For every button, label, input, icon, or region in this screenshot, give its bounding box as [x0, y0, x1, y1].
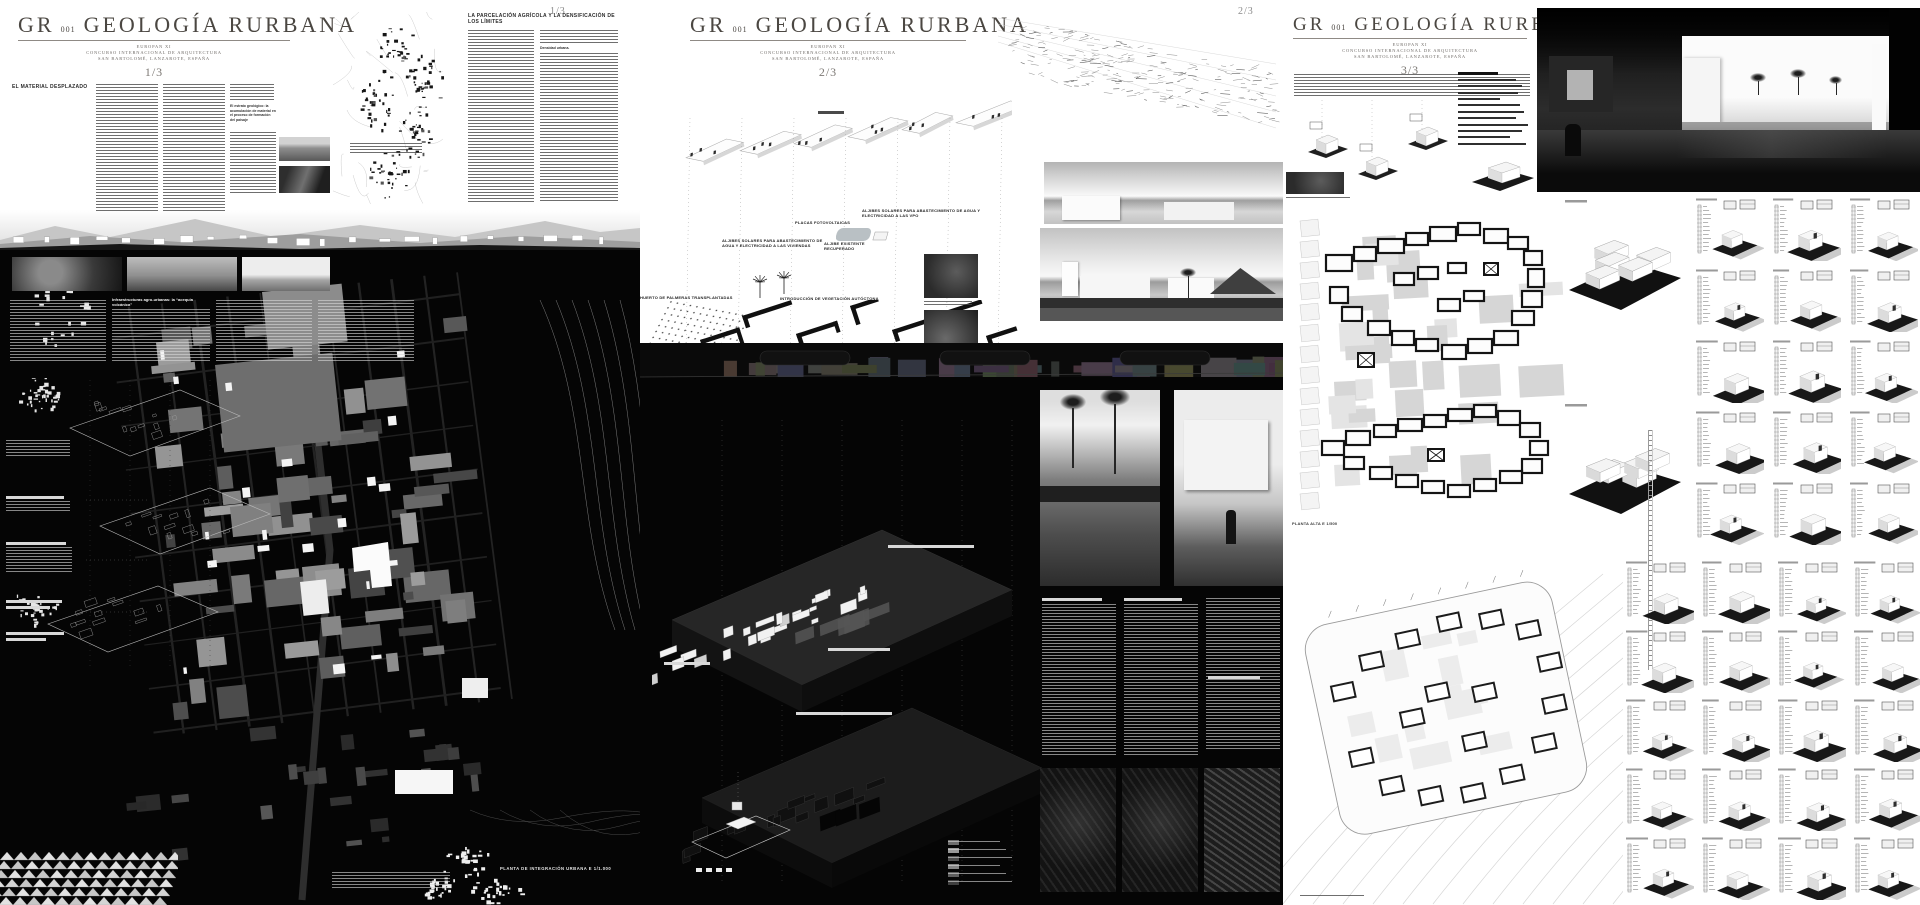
photo-people — [127, 257, 237, 291]
housing-type-card — [1852, 767, 1920, 831]
plan-scale-label: PLANTA DE INTEGRACIÓN URBANA E 1/1.000 — [500, 866, 640, 871]
photo-palm-street — [1040, 390, 1160, 586]
title-rule — [690, 40, 966, 41]
annotation-heading-greek — [6, 632, 64, 635]
competition-location: SAN BARTOLOMÉ, LANZAROTE, ESPAÑA — [1293, 54, 1527, 60]
floor-plan-ground — [1283, 542, 1623, 905]
materials-legend — [948, 838, 1052, 892]
housing-type-card — [1700, 698, 1770, 762]
competition-subtitle: EUROPAN XI CONCURSO INTERNACIONAL DE ARQ… — [1293, 42, 1527, 60]
photo-white-wall — [1174, 390, 1283, 586]
volcano-silhouette — [1210, 268, 1276, 294]
annotation-heading-greek — [6, 496, 64, 499]
housing-type-card — [1694, 481, 1764, 545]
housing-type-card — [1776, 629, 1846, 693]
greek-text — [230, 84, 274, 102]
program-legend-item — [1458, 92, 1518, 94]
housing-type-card — [1776, 836, 1846, 900]
low-wall — [1040, 486, 1160, 502]
aerial-perspective-sketch — [988, 4, 1280, 132]
housing-type-card — [1700, 767, 1770, 831]
legend-label-greek — [948, 841, 1000, 843]
palm-sketch — [746, 262, 806, 302]
program-legend-item — [1458, 124, 1528, 126]
photo-aerial-3 — [1204, 768, 1280, 892]
housing-type-card — [1771, 339, 1841, 403]
program-legend-item — [1458, 79, 1516, 81]
lawn — [1040, 308, 1283, 321]
greek-text-light — [332, 872, 450, 888]
label-aljibes-vpo: ALJIBES SOLARES PARA ABASTECIMIENTO DE A… — [862, 208, 984, 218]
annotation-heading-greek — [6, 638, 46, 641]
aljibe-axon-detail — [686, 772, 798, 890]
caption-context — [1286, 197, 1350, 200]
program-legend-item — [1458, 72, 1498, 75]
slab-label-greek — [828, 648, 890, 651]
housing-type-card — [1624, 698, 1694, 762]
legend-label-greek — [948, 881, 1012, 883]
legend-axon-detail — [1468, 152, 1540, 196]
program-legend-list — [1458, 72, 1542, 152]
legend-row — [948, 870, 1052, 878]
housing-type-card — [1848, 481, 1918, 545]
housing-type-card — [1624, 836, 1694, 900]
housing-cluster-axon-a — [1563, 198, 1685, 336]
panorama-elevation — [0, 210, 640, 252]
panel2-header: GR001GEOLOGÍA RURBANA EUROPAN XI CONCURS… — [690, 12, 966, 80]
housing-type-card — [1848, 197, 1918, 261]
annotation-heading-greek — [6, 542, 66, 545]
figure — [1226, 510, 1236, 544]
axon-label-greek — [818, 111, 844, 114]
wall-art-bright — [1567, 70, 1593, 100]
wall-plane — [1184, 420, 1268, 490]
competition-subtitle: EUROPAN XI CONCURSO INTERNACIONAL DE ARQ… — [18, 44, 290, 62]
greek-text-light — [6, 501, 70, 513]
annotation-heading-greek — [6, 606, 50, 609]
project-title: GR001GEOLOGÍA RURBANA — [18, 12, 290, 38]
dark-text-heading — [1042, 598, 1102, 601]
white-building — [1062, 262, 1078, 296]
photomontage-main — [1040, 228, 1283, 321]
greek-text — [540, 30, 618, 44]
project-title: GR001GEOLOGÍA RURBANA — [690, 12, 966, 38]
legend-label-greek — [948, 849, 1006, 851]
legend-row — [948, 878, 1052, 886]
housing-cluster-axon-b — [1563, 402, 1685, 534]
panel1-header: GR001GEOLOGÍA RURBANA EUROPAN XI CONCURS… — [18, 12, 290, 80]
greek-text — [96, 84, 158, 212]
housing-type-card — [1624, 767, 1694, 831]
housing-type-card — [1771, 268, 1841, 332]
housing-type-card — [1771, 197, 1841, 261]
project-title: GR001GEOLOGÍA RURBANA — [1293, 14, 1527, 36]
housing-type-card — [1852, 629, 1920, 693]
program-legend-item — [1458, 85, 1522, 87]
slab-label-greek — [664, 662, 710, 665]
slab-label-greek — [796, 712, 892, 715]
greek-text — [350, 143, 422, 155]
housing-type-card — [1776, 698, 1846, 762]
greek-text-light — [6, 547, 72, 573]
photo-interior-render — [1537, 8, 1920, 192]
housing-type-card — [1848, 268, 1918, 332]
caption-site-1 — [924, 301, 972, 306]
floor-reflection — [1677, 130, 1887, 158]
housing-type-card — [1776, 767, 1846, 831]
label-aljibes-viviendas: ALJIBES SOLARES PARA ABASTECIMIENTO DE A… — [722, 238, 832, 248]
housing-type-card — [1848, 410, 1918, 474]
heading-infraestructuras: Infraestructuras agro-urbanas: la “acequ… — [112, 297, 210, 307]
greek-text — [468, 30, 534, 202]
photo-landscape-small — [279, 137, 330, 161]
housing-type-card — [1848, 339, 1918, 403]
housing-type-card — [1771, 410, 1841, 474]
white-building — [1168, 278, 1214, 298]
greek-text-light — [112, 309, 210, 362]
plan1-scale-label: PLANTA ALTA E 1/500 — [1292, 521, 1372, 526]
floor-plan-upper — [1298, 203, 1566, 519]
seated-figure — [1565, 124, 1581, 156]
photo-white-buildings — [1044, 162, 1283, 224]
photo-context-small — [1286, 172, 1344, 194]
greek-text-light — [10, 300, 106, 362]
photo-white-town — [242, 257, 330, 291]
greek-text-light — [1206, 598, 1280, 750]
heading-material-desplazado: EL MATERIAL DESPLAZADO — [12, 84, 104, 90]
competition-location: SAN BARTOLOMÉ, LANZAROTE, ESPAÑA — [18, 56, 290, 62]
competition-board: GR001GEOLOGÍA RURBANA EUROPAN XI CONCURS… — [0, 0, 1920, 905]
housing-type-card — [1700, 836, 1770, 900]
competition-subtitle: EUROPAN XI CONCURSO INTERNACIONAL DE ARQ… — [690, 44, 966, 62]
panel-3: GR001GEOLOGÍA RURBANA EUROPAN XI CONCURS… — [1283, 0, 1920, 905]
photo-aerial-1 — [1040, 768, 1116, 892]
legend-row — [948, 854, 1052, 862]
greek-text-light — [6, 440, 70, 456]
inline-heading-densidad: Densidad urbana. — [540, 46, 580, 51]
legend-label-greek — [948, 873, 1006, 875]
housing-type-card — [1624, 629, 1694, 693]
competition-location: SAN BARTOLOMÉ, LANZAROTE, ESPAÑA — [690, 56, 966, 62]
program-legend-item — [1458, 98, 1500, 100]
patio-wall — [1682, 58, 1720, 128]
housing-type-card — [1771, 481, 1841, 545]
program-legend-item — [1458, 104, 1520, 106]
tall-measure-bar — [1648, 430, 1653, 670]
program-legend-item — [1458, 130, 1522, 132]
territory-sketch-map — [333, 12, 460, 204]
legend-label-greek — [948, 857, 1012, 859]
panel-2: GR001GEOLOGÍA RURBANA EUROPAN XI CONCURS… — [640, 0, 1283, 905]
photo-cave — [12, 257, 122, 291]
building-block — [1062, 196, 1120, 220]
plan2-caption — [1300, 895, 1364, 898]
annotation-heading-greek — [6, 600, 62, 603]
legend-row — [948, 862, 1052, 870]
housing-type-card — [1694, 410, 1764, 474]
legend-row — [948, 846, 1052, 854]
housing-type-card — [1694, 197, 1764, 261]
terraced-fields-pattern — [0, 852, 178, 905]
greek-text — [163, 84, 225, 212]
dark-text-heading — [1124, 598, 1182, 601]
housing-type-card — [1694, 268, 1764, 332]
building-block — [1164, 202, 1234, 220]
program-legend-item — [1458, 143, 1526, 145]
panel3-header: GR001GEOLOGÍA RURBANA EUROPAN XI CONCURS… — [1293, 14, 1527, 78]
housing-type-card — [1776, 560, 1846, 624]
housing-type-card — [1852, 698, 1920, 762]
housing-type-card — [1700, 560, 1770, 624]
subheading-estrato: El estrato geológico: la acumulación de … — [230, 104, 276, 122]
photo-site-1 — [924, 254, 978, 298]
program-legend-item — [1458, 111, 1524, 113]
program-legend-item — [1458, 136, 1510, 138]
aljibe-slab-detail — [836, 222, 896, 248]
housing-type-card — [1852, 560, 1920, 624]
legend-label-greek — [948, 865, 1000, 867]
greek-text — [230, 132, 276, 194]
page-number: 2/3 — [690, 65, 966, 80]
housing-type-card — [1700, 629, 1770, 693]
housing-type-card — [1694, 339, 1764, 403]
housing-type-card — [1852, 836, 1920, 900]
legend-row — [948, 838, 1052, 846]
greek-text-light — [216, 300, 312, 362]
title-rule — [1293, 38, 1527, 39]
greek-text-light — [1124, 604, 1198, 756]
housing-type-card — [1624, 560, 1694, 624]
photo-aerial-2 — [1122, 768, 1198, 892]
program-legend-item — [1458, 117, 1516, 119]
greek-text-light — [1042, 604, 1116, 756]
slab-label-greek — [888, 545, 974, 548]
greek-text — [540, 53, 618, 202]
heading-parcelacion: LA PARCELACIÓN AGRÍCOLA Y LA DENSIFICACI… — [468, 13, 618, 25]
title-rule — [18, 40, 290, 41]
page-number: 1/3 — [18, 65, 290, 80]
photo-road-small — [279, 166, 330, 193]
greek-text-light — [318, 300, 414, 362]
white-building — [1080, 276, 1150, 300]
